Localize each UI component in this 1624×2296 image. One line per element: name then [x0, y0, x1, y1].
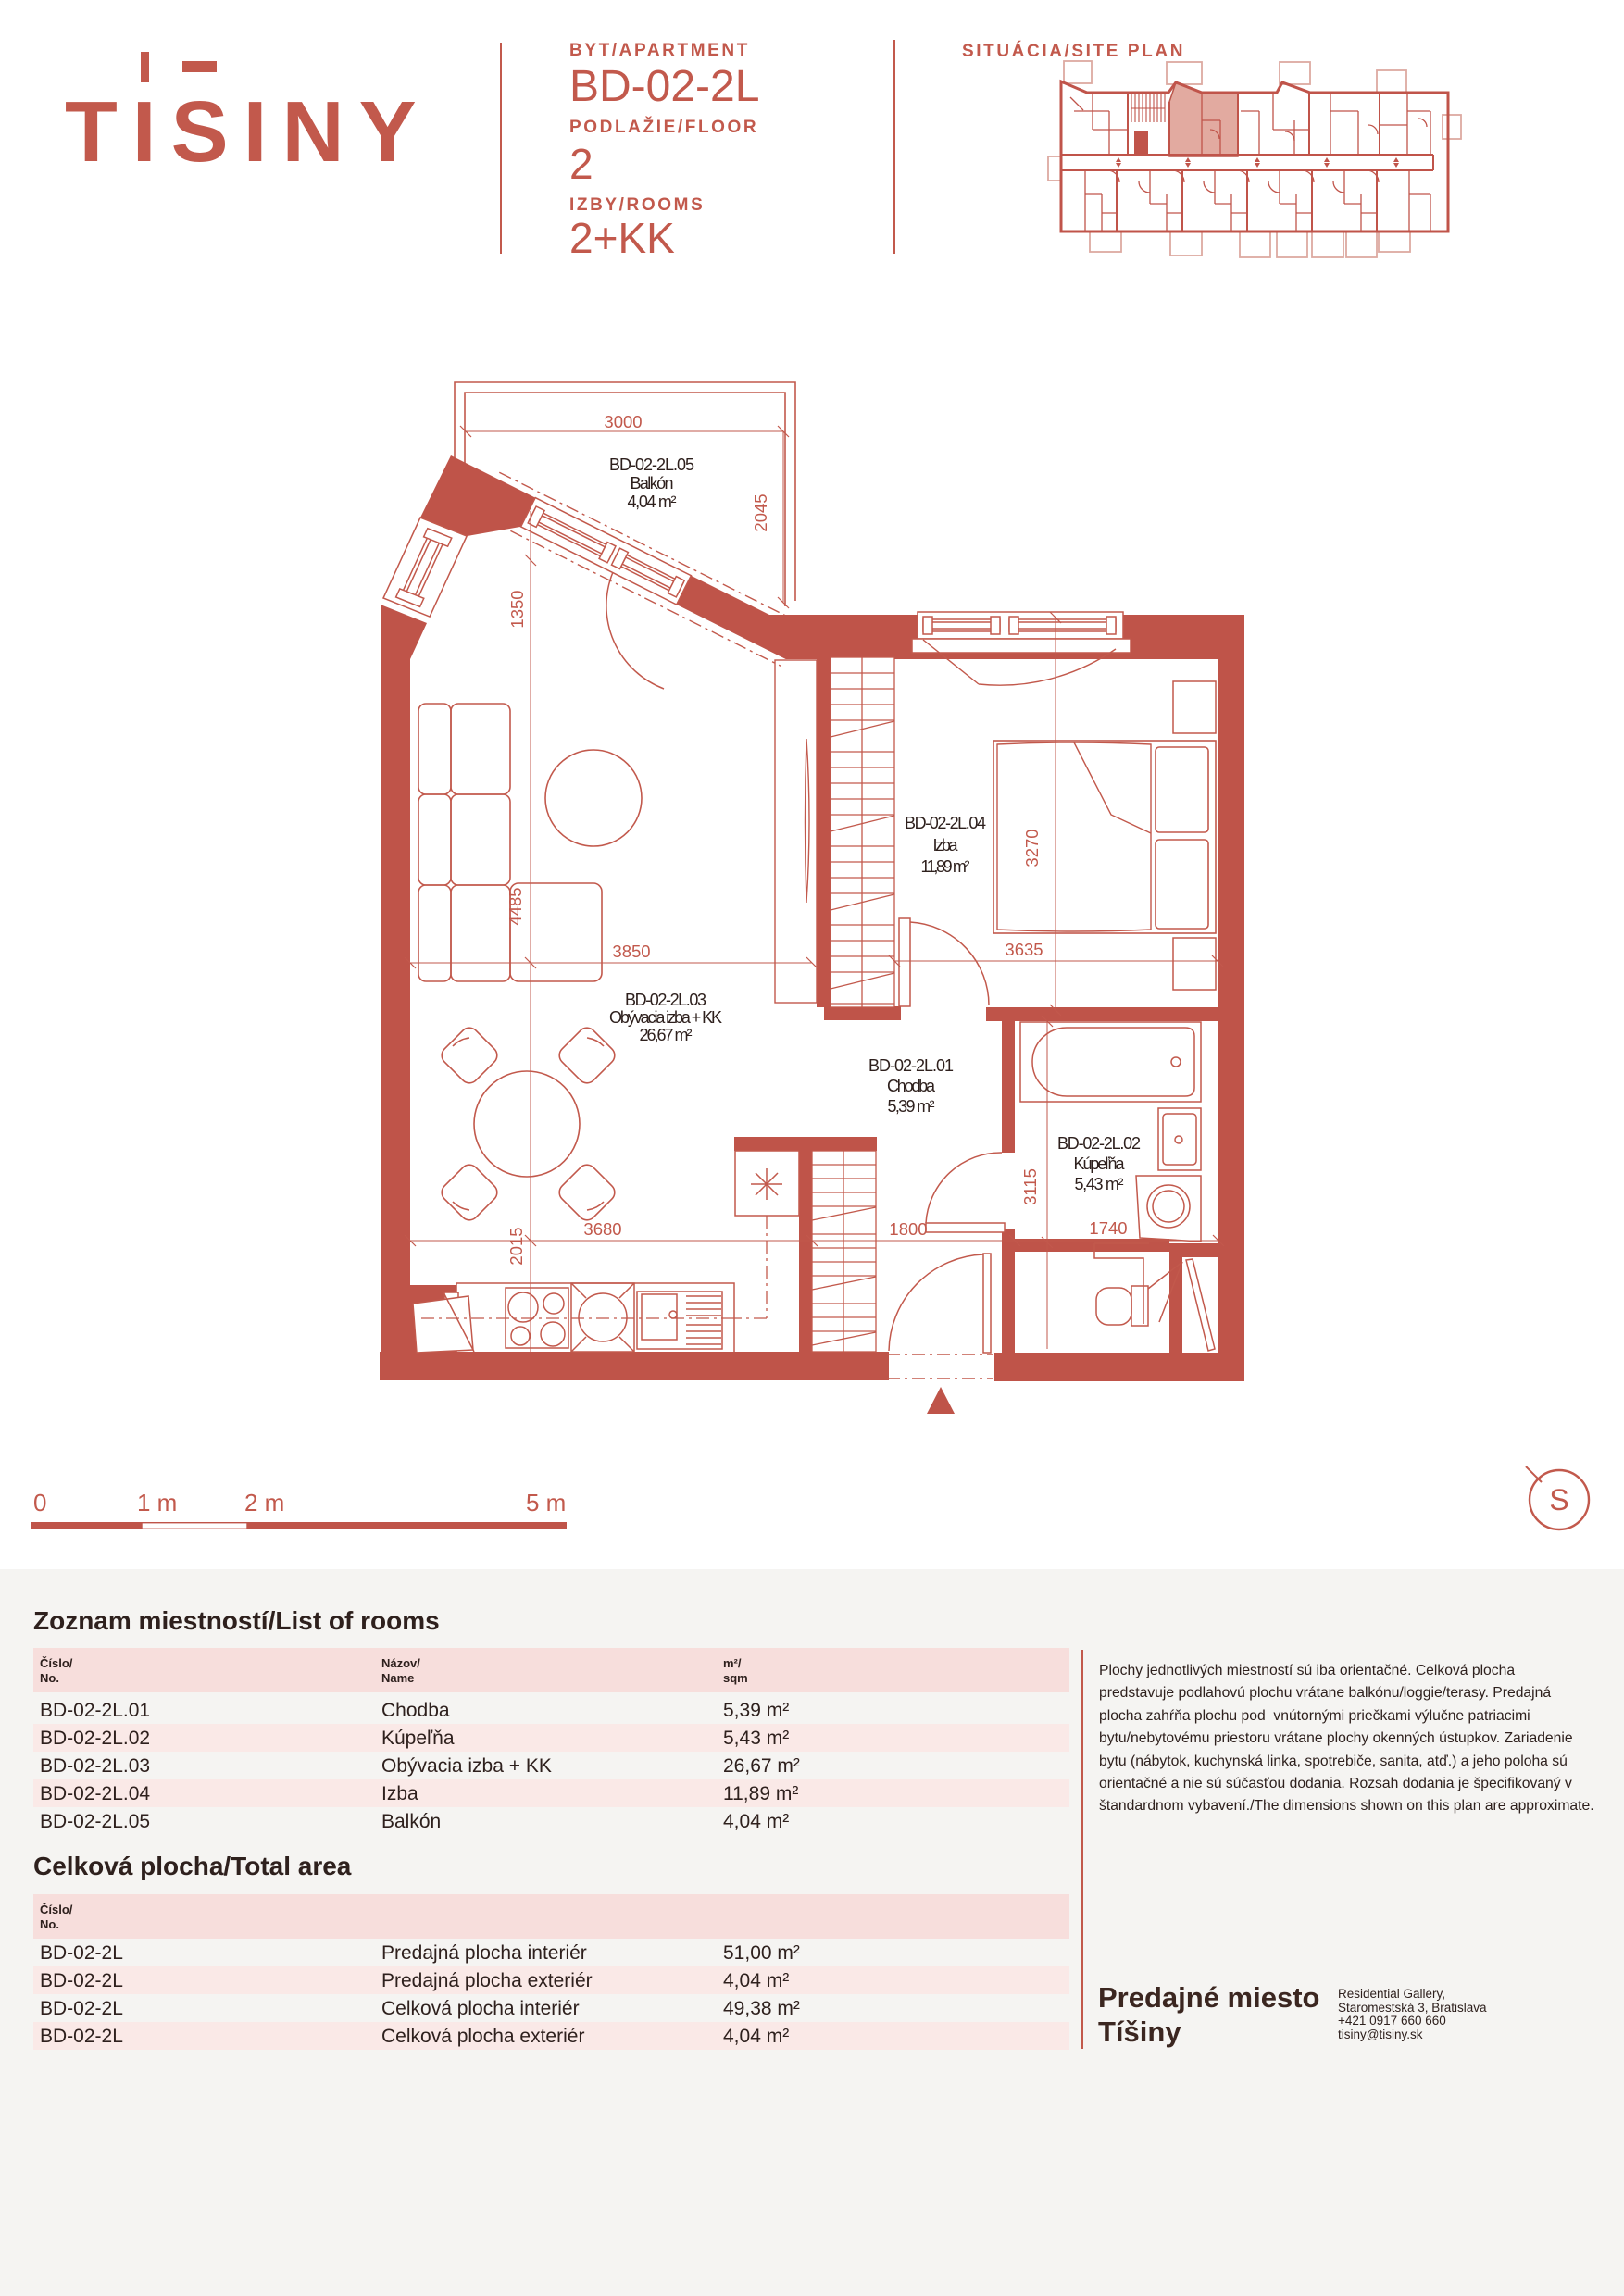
svg-text:11,89 m²: 11,89 m² — [921, 857, 970, 876]
svg-text:BD-02-2L.01: BD-02-2L.01 — [868, 1056, 954, 1075]
svg-text:S: S — [1549, 1483, 1568, 1516]
svg-text:1350: 1350 — [507, 590, 527, 628]
svg-text:1800: 1800 — [889, 1219, 927, 1239]
svg-text:BD-02-2L.04: BD-02-2L.04 — [905, 814, 986, 832]
svg-text:BD-02-2L.05: BD-02-2L.05 — [609, 455, 694, 474]
svg-text:2015: 2015 — [506, 1227, 526, 1265]
svg-text:Chodba: Chodba — [887, 1077, 936, 1095]
svg-text:4,04 m²: 4,04 m² — [628, 493, 677, 511]
svg-text:Kúpeľňa: Kúpeľňa — [1074, 1154, 1126, 1173]
svg-text:3635: 3635 — [1005, 940, 1043, 959]
svg-text:1740: 1740 — [1089, 1218, 1127, 1238]
svg-text:4485: 4485 — [506, 887, 525, 925]
svg-text:0: 0 — [33, 1489, 46, 1516]
svg-text:3850: 3850 — [612, 942, 650, 961]
svg-text:BD-02-2L.03: BD-02-2L.03 — [625, 991, 706, 1009]
svg-text:1 m: 1 m — [137, 1489, 177, 1516]
svg-text:2 m: 2 m — [244, 1489, 284, 1516]
svg-text:3680: 3680 — [583, 1219, 621, 1239]
svg-text:5,39 m²: 5,39 m² — [888, 1097, 935, 1116]
svg-text:2045: 2045 — [751, 493, 770, 531]
svg-text:BD-02-2L.02: BD-02-2L.02 — [1057, 1134, 1141, 1153]
svg-text:5 m: 5 m — [526, 1489, 566, 1516]
svg-text:Izba: Izba — [933, 836, 959, 855]
svg-text:3115: 3115 — [1020, 1168, 1040, 1205]
svg-text:Obývacia izba + KK: Obývacia izba + KK — [609, 1008, 722, 1027]
svg-text:26,67 m²: 26,67 m² — [640, 1026, 693, 1044]
svg-text:Balkón: Balkón — [631, 474, 674, 493]
svg-text:3270: 3270 — [1022, 829, 1042, 867]
svg-text:3000: 3000 — [604, 412, 642, 431]
svg-text:5,43 m²: 5,43 m² — [1075, 1175, 1124, 1193]
